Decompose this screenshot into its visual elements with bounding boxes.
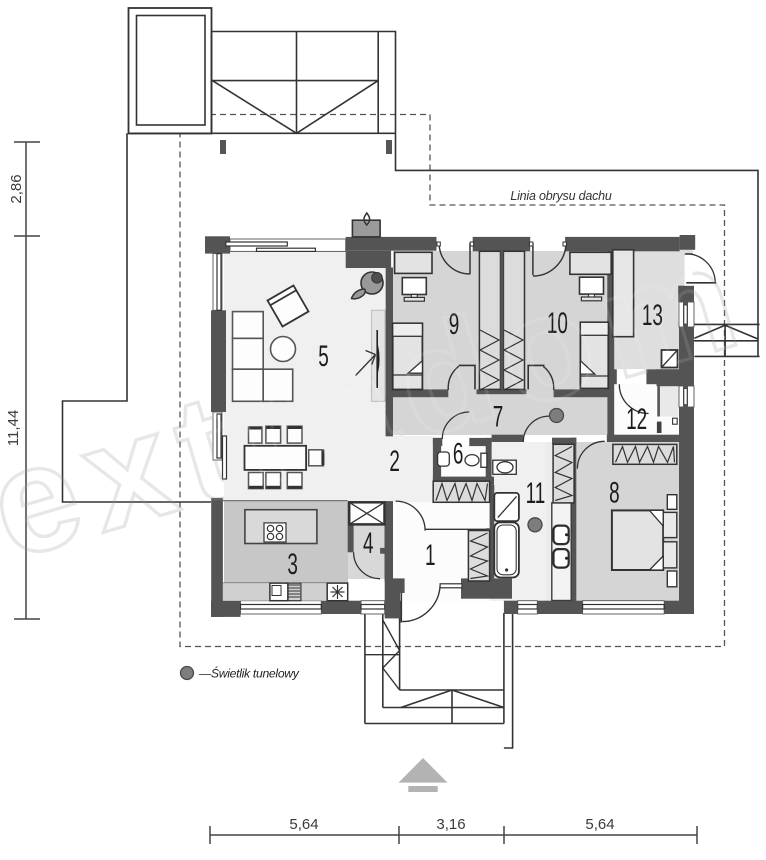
svg-text:11: 11	[526, 477, 546, 511]
svg-text:Linia obrysu dachu: Linia obrysu dachu	[510, 189, 612, 203]
svg-text:2,86: 2,86	[8, 174, 25, 203]
svg-text:5,64: 5,64	[289, 816, 318, 833]
svg-text:4: 4	[363, 526, 374, 560]
svg-text:3,16: 3,16	[436, 816, 465, 833]
svg-text:—Świetlik tunelowy: —Świetlik tunelowy	[198, 666, 300, 681]
svg-text:5,64: 5,64	[585, 816, 614, 833]
svg-text:3: 3	[287, 548, 298, 582]
svg-text:8: 8	[609, 476, 620, 510]
svg-text:1: 1	[425, 538, 436, 572]
